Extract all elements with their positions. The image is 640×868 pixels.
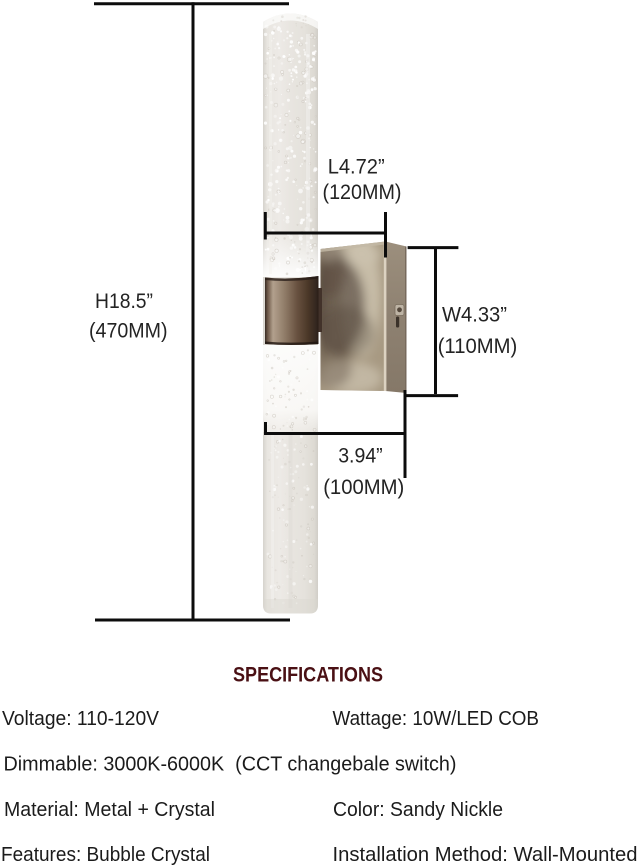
svg-text:3.94”: 3.94” [338, 444, 383, 468]
svg-text:(470MM): (470MM) [89, 319, 168, 343]
svg-text:(110MM): (110MM) [438, 334, 518, 358]
svg-text:Voltage: 110-120V: Voltage: 110-120V [2, 708, 160, 730]
svg-text:Dimmable: 3000K-6000K (CCT ch: Dimmable: 3000K-6000K (CCT changebale sw… [4, 754, 457, 776]
svg-text:W4.33”: W4.33” [442, 303, 507, 327]
svg-text:H18.5”: H18.5” [95, 289, 153, 313]
svg-text:L4.72”: L4.72” [328, 155, 385, 179]
svg-text:SPECIFICATIONS: SPECIFICATIONS [233, 664, 383, 687]
svg-text:Wattage: 10W/LED COB: Wattage: 10W/LED COB [333, 708, 540, 730]
svg-text:(100MM): (100MM) [323, 475, 404, 499]
svg-text:Installation Method: Wall-Moun: Installation Method: Wall-Mounted [333, 844, 638, 866]
svg-text:Material: Metal + Crystal: Material: Metal + Crystal [4, 799, 215, 821]
svg-text:Features: Bubble Crystal: Features: Bubble Crystal [1, 844, 210, 866]
svg-text:(120MM): (120MM) [323, 180, 402, 204]
svg-text:Color: Sandy Nickle: Color: Sandy Nickle [333, 799, 503, 821]
